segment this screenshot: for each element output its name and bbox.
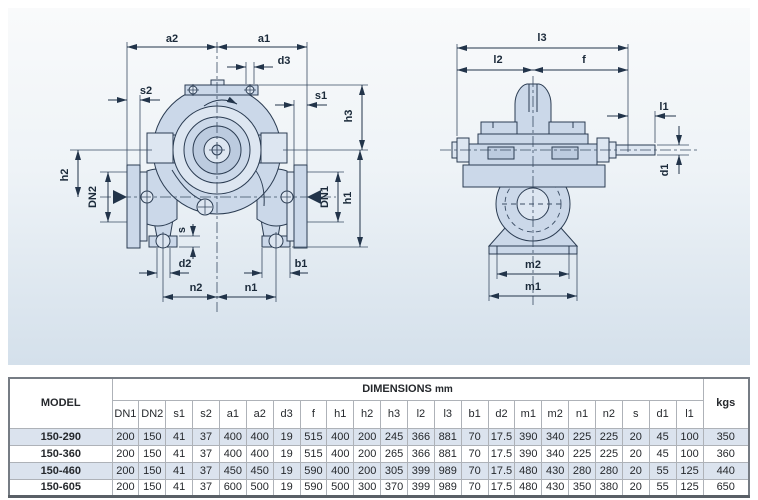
dim-label-d3: d3 bbox=[278, 55, 291, 67]
dim-label-h3: h3 bbox=[343, 110, 355, 123]
dim-label-n2: n2 bbox=[190, 282, 203, 294]
value-cell: 150 bbox=[139, 462, 166, 479]
value-cell: 200 bbox=[112, 462, 139, 479]
value-cell: 515 bbox=[300, 428, 327, 445]
column-header-DN2: DN2 bbox=[139, 400, 166, 428]
dim-label-a2: a2 bbox=[166, 33, 178, 45]
column-header-m1: m1 bbox=[515, 400, 542, 428]
value-cell: 200 bbox=[112, 445, 139, 462]
value-cell: 500 bbox=[246, 479, 273, 496]
value-cell: 390 bbox=[515, 445, 542, 462]
value-cell: 100 bbox=[676, 428, 703, 445]
value-cell: 41 bbox=[166, 462, 193, 479]
value-cell: 37 bbox=[193, 428, 220, 445]
value-cell: 881 bbox=[434, 445, 461, 462]
value-cell: 340 bbox=[542, 445, 569, 462]
weight-header: kgs bbox=[703, 378, 749, 428]
value-cell: 45 bbox=[649, 445, 676, 462]
kgs-cell: 440 bbox=[703, 462, 749, 479]
dim-label-d2: d2 bbox=[179, 258, 192, 270]
dimensions-table-wrap: MODEL DIMENSIONS mm kgs DN1DN2s1s2a1a2d3… bbox=[8, 377, 750, 498]
table-row: 150-290200150413740040019515400200245366… bbox=[9, 428, 749, 445]
value-cell: 340 bbox=[542, 428, 569, 445]
value-cell: 200 bbox=[354, 462, 381, 479]
value-cell: 70 bbox=[461, 445, 488, 462]
value-cell: 20 bbox=[622, 428, 649, 445]
flow-arrow-dn2 bbox=[113, 190, 127, 204]
column-header-d1: d1 bbox=[649, 400, 676, 428]
value-cell: 225 bbox=[595, 428, 622, 445]
columns-row: DN1DN2s1s2a1a2d3fh1h2h3l2l3b1d2m1m2n1n2s… bbox=[9, 400, 749, 428]
value-cell: 225 bbox=[569, 445, 596, 462]
value-cell: 380 bbox=[595, 479, 622, 496]
value-cell: 150 bbox=[139, 479, 166, 496]
value-cell: 41 bbox=[166, 445, 193, 462]
value-cell: 200 bbox=[354, 428, 381, 445]
column-header-DN1: DN1 bbox=[112, 400, 139, 428]
model-header: MODEL bbox=[9, 378, 112, 428]
value-cell: 400 bbox=[246, 445, 273, 462]
value-cell: 55 bbox=[649, 462, 676, 479]
value-cell: 125 bbox=[676, 479, 703, 496]
value-cell: 350 bbox=[569, 479, 596, 496]
value-cell: 100 bbox=[676, 445, 703, 462]
value-cell: 399 bbox=[407, 462, 434, 479]
model-cell: 150-605 bbox=[9, 479, 112, 496]
side-view: l3 l2 f l1 d1 m2 m1 bbox=[440, 32, 700, 305]
value-cell: 20 bbox=[622, 479, 649, 496]
dim-label-s2: s2 bbox=[140, 85, 152, 97]
dim-label-dn2: DN2 bbox=[87, 186, 99, 208]
column-header-n1: n1 bbox=[569, 400, 596, 428]
column-header-s1: s1 bbox=[166, 400, 193, 428]
value-cell: 200 bbox=[112, 479, 139, 496]
value-cell: 590 bbox=[300, 462, 327, 479]
value-cell: 390 bbox=[515, 428, 542, 445]
value-cell: 200 bbox=[354, 445, 381, 462]
value-cell: 400 bbox=[219, 428, 246, 445]
value-cell: 430 bbox=[542, 479, 569, 496]
dim-label-h1: h1 bbox=[342, 192, 354, 205]
value-cell: 41 bbox=[166, 479, 193, 496]
value-cell: 400 bbox=[246, 428, 273, 445]
dim-label-m1: m1 bbox=[525, 281, 541, 293]
pump-dimension-drawings: a2 a1 d3 s2 s1 h3 h1 h2 DN2 DN1 bbox=[0, 0, 758, 368]
value-cell: 45 bbox=[649, 428, 676, 445]
value-cell: 989 bbox=[434, 462, 461, 479]
value-cell: 280 bbox=[569, 462, 596, 479]
value-cell: 300 bbox=[354, 479, 381, 496]
value-cell: 400 bbox=[327, 462, 354, 479]
kgs-cell: 360 bbox=[703, 445, 749, 462]
value-cell: 600 bbox=[219, 479, 246, 496]
value-cell: 125 bbox=[676, 462, 703, 479]
value-cell: 200 bbox=[112, 428, 139, 445]
value-cell: 450 bbox=[219, 462, 246, 479]
dimensions-header-cell: DIMENSIONS mm bbox=[112, 378, 703, 400]
value-cell: 480 bbox=[515, 479, 542, 496]
dim-label-l2: l2 bbox=[493, 54, 502, 66]
dimensions-table: MODEL DIMENSIONS mm kgs DN1DN2s1s2a1a2d3… bbox=[8, 377, 750, 498]
dim-label-d1: d1 bbox=[659, 164, 671, 177]
value-cell: 37 bbox=[193, 462, 220, 479]
value-cell: 500 bbox=[327, 479, 354, 496]
value-cell: 399 bbox=[407, 479, 434, 496]
value-cell: 590 bbox=[300, 479, 327, 496]
column-header-l1: l1 bbox=[676, 400, 703, 428]
value-cell: 37 bbox=[193, 479, 220, 496]
flow-arrow-dn1 bbox=[307, 190, 321, 204]
table-row: 150-605200150413760050019590500300370399… bbox=[9, 479, 749, 496]
value-cell: 225 bbox=[595, 445, 622, 462]
dim-label-s1: s1 bbox=[315, 90, 327, 102]
value-cell: 515 bbox=[300, 445, 327, 462]
value-cell: 150 bbox=[139, 428, 166, 445]
dim-label-b1: b1 bbox=[295, 258, 308, 270]
value-cell: 41 bbox=[166, 428, 193, 445]
column-header-d2: d2 bbox=[488, 400, 515, 428]
column-header-s2: s2 bbox=[193, 400, 220, 428]
model-cell: 150-360 bbox=[9, 445, 112, 462]
column-header-h2: h2 bbox=[354, 400, 381, 428]
dim-label-n1: n1 bbox=[245, 282, 258, 294]
value-cell: 400 bbox=[327, 445, 354, 462]
value-cell: 150 bbox=[139, 445, 166, 462]
value-cell: 37 bbox=[193, 445, 220, 462]
value-cell: 305 bbox=[381, 462, 408, 479]
value-cell: 70 bbox=[461, 428, 488, 445]
column-header-m2: m2 bbox=[542, 400, 569, 428]
dimensions-unit-label: mm bbox=[435, 384, 453, 395]
column-header-a2: a2 bbox=[246, 400, 273, 428]
column-header-h1: h1 bbox=[327, 400, 354, 428]
dim-label-a1: a1 bbox=[258, 33, 270, 45]
column-header-a1: a1 bbox=[219, 400, 246, 428]
value-cell: 19 bbox=[273, 445, 300, 462]
value-cell: 19 bbox=[273, 479, 300, 496]
value-cell: 17.5 bbox=[488, 428, 515, 445]
value-cell: 400 bbox=[327, 428, 354, 445]
value-cell: 20 bbox=[622, 462, 649, 479]
dimensions-header-label: DIMENSIONS bbox=[362, 383, 432, 395]
value-cell: 430 bbox=[542, 462, 569, 479]
dim-label-s: s bbox=[176, 227, 188, 233]
value-cell: 989 bbox=[434, 479, 461, 496]
value-cell: 19 bbox=[273, 462, 300, 479]
table-body: 150-290200150413740040019515400200245366… bbox=[9, 428, 749, 496]
value-cell: 225 bbox=[569, 428, 596, 445]
dim-label-f: f bbox=[582, 54, 586, 66]
value-cell: 19 bbox=[273, 428, 300, 445]
column-header-s: s bbox=[622, 400, 649, 428]
datasheet-page: { "diagram": { "front": { "a2": "a2", "a… bbox=[0, 0, 758, 500]
model-cell: 150-290 bbox=[9, 428, 112, 445]
front-view: a2 a1 d3 s2 s1 h3 h1 h2 DN2 DN1 bbox=[59, 33, 368, 312]
column-header-f: f bbox=[300, 400, 327, 428]
dim-label-m2: m2 bbox=[525, 259, 541, 271]
value-cell: 17.5 bbox=[488, 462, 515, 479]
value-cell: 20 bbox=[622, 445, 649, 462]
column-header-n2: n2 bbox=[595, 400, 622, 428]
value-cell: 70 bbox=[461, 462, 488, 479]
value-cell: 400 bbox=[219, 445, 246, 462]
column-header-h3: h3 bbox=[381, 400, 408, 428]
dim-label-l3: l3 bbox=[537, 32, 546, 44]
column-header-b1: b1 bbox=[461, 400, 488, 428]
table-row: 150-460200150413745045019590400200305399… bbox=[9, 462, 749, 479]
table-row: 150-360200150413740040019515400200265366… bbox=[9, 445, 749, 462]
kgs-cell: 350 bbox=[703, 428, 749, 445]
kgs-cell: 650 bbox=[703, 479, 749, 496]
column-header-l2: l2 bbox=[407, 400, 434, 428]
value-cell: 245 bbox=[381, 428, 408, 445]
dim-label-l1: l1 bbox=[659, 101, 668, 113]
value-cell: 480 bbox=[515, 462, 542, 479]
value-cell: 370 bbox=[381, 479, 408, 496]
value-cell: 366 bbox=[407, 445, 434, 462]
value-cell: 366 bbox=[407, 428, 434, 445]
column-header-l3: l3 bbox=[434, 400, 461, 428]
value-cell: 881 bbox=[434, 428, 461, 445]
value-cell: 265 bbox=[381, 445, 408, 462]
value-cell: 55 bbox=[649, 479, 676, 496]
value-cell: 280 bbox=[595, 462, 622, 479]
column-header-d3: d3 bbox=[273, 400, 300, 428]
dim-label-h2: h2 bbox=[59, 169, 71, 182]
value-cell: 70 bbox=[461, 479, 488, 496]
value-cell: 17.5 bbox=[488, 479, 515, 496]
value-cell: 450 bbox=[246, 462, 273, 479]
model-cell: 150-460 bbox=[9, 462, 112, 479]
value-cell: 17.5 bbox=[488, 445, 515, 462]
